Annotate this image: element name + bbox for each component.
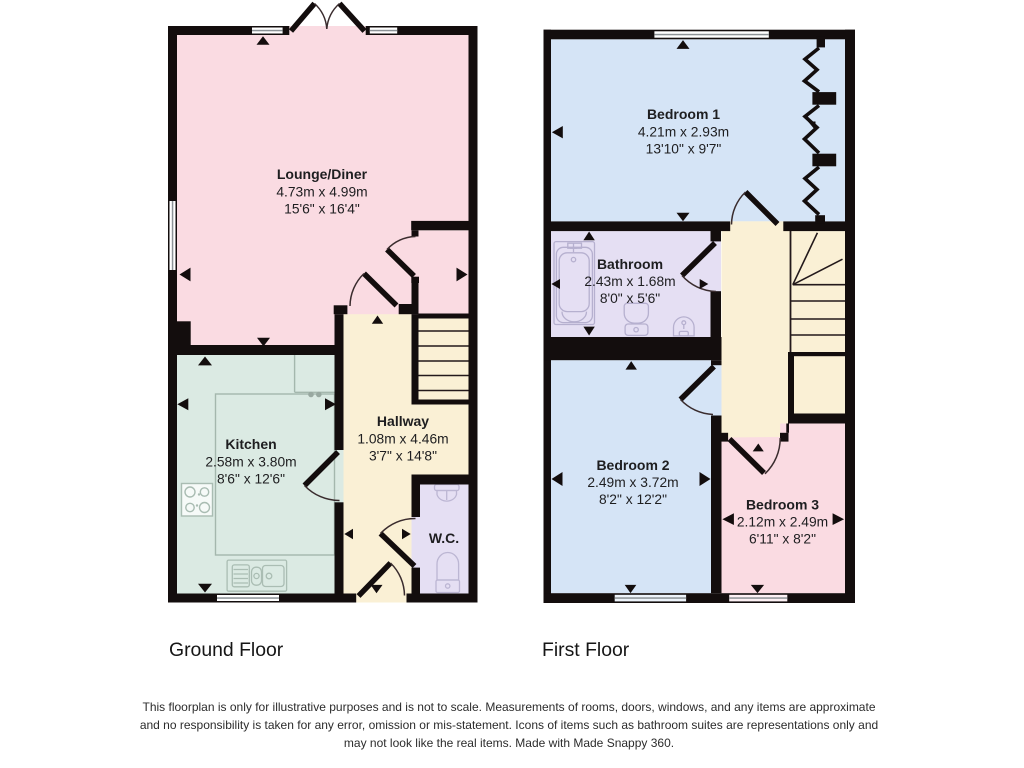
svg-text:Bathroom: Bathroom	[597, 256, 663, 272]
svg-text:Kitchen: Kitchen	[225, 436, 276, 452]
svg-text:Lounge/Diner: Lounge/Diner	[277, 166, 368, 182]
svg-text:Bedroom 1: Bedroom 1	[647, 106, 720, 122]
svg-text:8'2" x 12'2": 8'2" x 12'2"	[599, 492, 667, 507]
svg-text:8'0" x 5'6": 8'0" x 5'6"	[600, 291, 660, 306]
svg-text:Bedroom 3: Bedroom 3	[746, 497, 819, 513]
svg-text:4.73m x 4.99m: 4.73m x 4.99m	[276, 185, 367, 200]
svg-text:1.08m x 4.46m: 1.08m x 4.46m	[357, 432, 448, 447]
svg-text:may not look like the real ite: may not look like the real items. Made w…	[344, 736, 674, 750]
svg-text:2.49m x 3.72m: 2.49m x 3.72m	[587, 475, 678, 490]
svg-text:Ground Floor: Ground Floor	[169, 639, 284, 661]
svg-text:2.58m x 3.80m: 2.58m x 3.80m	[205, 455, 296, 470]
svg-text:Hallway: Hallway	[377, 413, 429, 429]
svg-text:13'10" x 9'7": 13'10" x 9'7"	[646, 142, 722, 157]
svg-text:15'6" x 16'4": 15'6" x 16'4"	[284, 202, 360, 217]
svg-text:First Floor: First Floor	[542, 639, 630, 661]
svg-text:8'6" x 12'6": 8'6" x 12'6"	[217, 472, 285, 487]
svg-text:W.C.: W.C.	[429, 530, 459, 546]
svg-text:and no responsibility is taken: and no responsibility is taken for any e…	[140, 718, 878, 732]
svg-text:This floorplan is only for ill: This floorplan is only for illustrative …	[142, 700, 875, 714]
svg-text:2.43m x 1.68m: 2.43m x 1.68m	[584, 274, 675, 289]
svg-text:Bedroom 2: Bedroom 2	[596, 457, 669, 473]
svg-text:3'7" x 14'8": 3'7" x 14'8"	[369, 449, 437, 464]
svg-text:2.12m x 2.49m: 2.12m x 2.49m	[737, 515, 828, 530]
svg-text:4.21m x 2.93m: 4.21m x 2.93m	[638, 125, 729, 140]
svg-text:6'11" x 8'2": 6'11" x 8'2"	[749, 532, 816, 547]
